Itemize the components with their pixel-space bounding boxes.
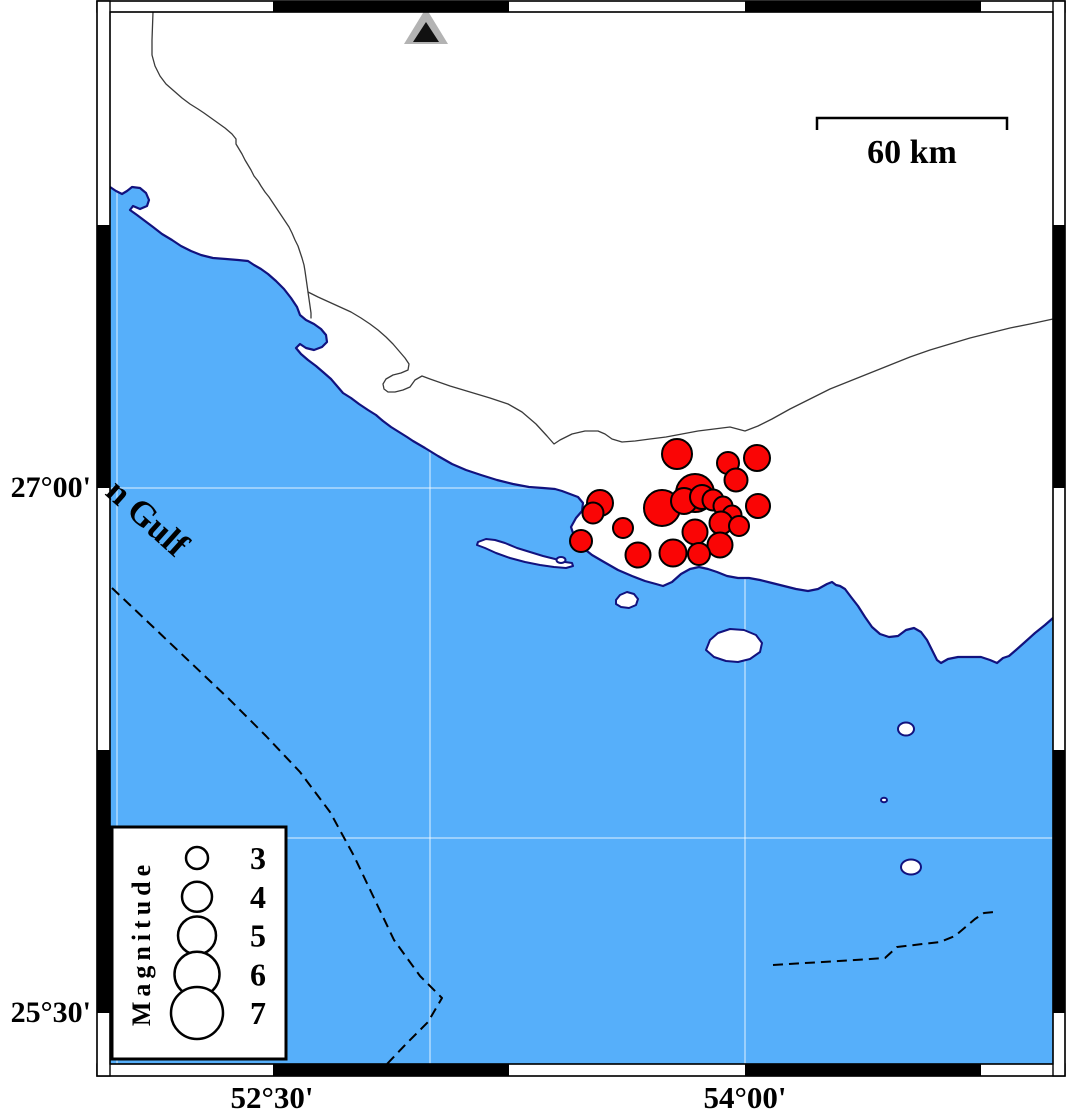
legend-magnitude-label: 6 [250,956,266,992]
legend-magnitude-label: 7 [250,995,266,1031]
scale-bar: 60 km [817,118,1007,171]
legend-magnitude-label: 3 [250,840,266,876]
islet [557,557,566,563]
legend-magnitude-circle [186,847,208,869]
epicenter-marker [583,503,604,524]
legend-labels: 34567 [250,840,266,1031]
epicenter-marker [746,494,770,518]
legend-magnitude-circle [182,882,212,912]
epicenter-marker [744,445,770,471]
map-canvas: 60 km Magnitude 34567 27°00' 25°30' 52°3… [0,0,1066,1113]
scale-bar-label: 60 km [867,134,957,171]
epicenter-marker [729,516,749,536]
inland-boundary-line [308,292,1053,444]
seismicity-map: 60 km Magnitude 34567 27°00' 25°30' 52°3… [0,0,1066,1113]
lat-label-27: 27°00' [11,471,91,504]
epicenter-markers [570,439,770,568]
island [898,723,914,736]
epicenter-marker [613,518,633,538]
epicenter-marker [725,469,748,492]
epicenter-marker [683,520,708,545]
epicenter-marker [662,439,692,469]
lat-label-25-30: 25°30' [11,996,91,1029]
island [616,592,638,608]
epicenter-marker [626,543,651,568]
lon-label-52-30: 52°30' [230,1080,313,1113]
epicenter-marker [660,540,687,567]
legend-title: Magnitude [127,860,156,1026]
magnitude-legend: Magnitude 34567 [112,827,286,1059]
epicenter-marker [688,543,710,565]
epicenter-marker [708,533,733,558]
island [901,860,921,875]
station-triangle-icon [404,8,448,44]
legend-magnitude-label: 5 [250,918,266,954]
legend-magnitude-circle [171,987,223,1039]
legend-magnitude-circle [178,917,216,955]
lon-label-54-00: 54°00' [703,1080,786,1113]
legend-magnitude-label: 4 [250,879,266,915]
epicenter-marker [570,530,592,552]
islet [881,798,887,802]
